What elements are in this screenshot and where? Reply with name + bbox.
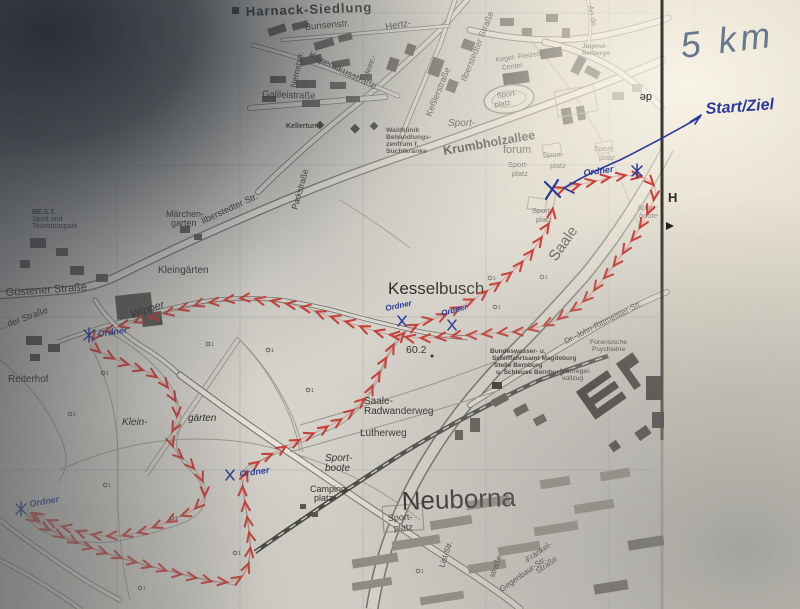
map-canvas: 1 1 1 1 1 1 1 1 1 1 1 1 1 1 Harnack-Sied… (0, 0, 800, 609)
map-photo: 1 1 1 1 1 1 1 1 1 1 1 1 1 1 Harnack-Sied… (0, 0, 800, 609)
shadow-bottom-left (0, 0, 800, 609)
